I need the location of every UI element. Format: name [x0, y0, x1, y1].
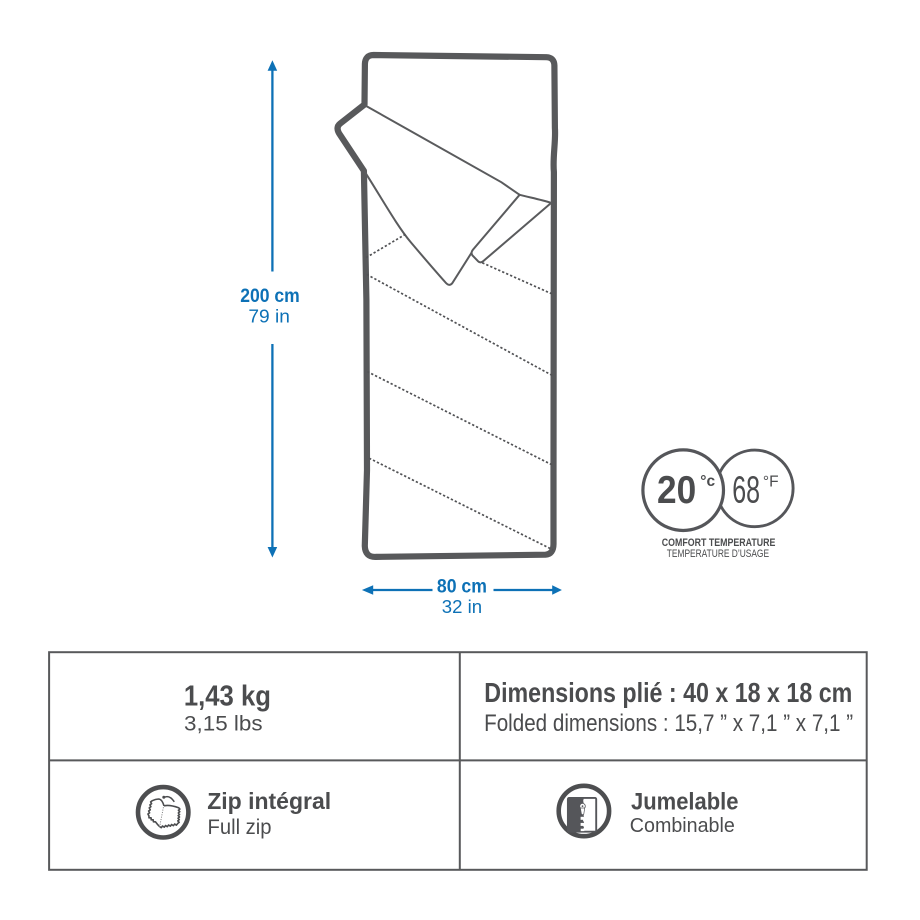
svg-text:20: 20: [657, 469, 696, 512]
svg-text:Jumelable: Jumelable: [631, 788, 739, 815]
svg-text:80 cm: 80 cm: [437, 576, 487, 598]
svg-text:Zip intégral: Zip intégral: [207, 788, 331, 814]
svg-text:32 in: 32 in: [442, 596, 482, 617]
svg-text:Full zip: Full zip: [208, 815, 272, 839]
svg-text:Dimensions plié : 40 x 18 x 18: Dimensions plié : 40 x 18 x 18 cm: [484, 677, 852, 708]
svg-text:200 cm: 200 cm: [240, 285, 300, 307]
svg-text:68: 68: [732, 470, 760, 512]
svg-text:Combinable: Combinable: [630, 815, 735, 837]
svg-text:1,43 kg: 1,43 kg: [184, 680, 271, 712]
svg-text:3,15 lbs: 3,15 lbs: [184, 712, 263, 736]
svg-text:°F: °F: [763, 474, 779, 491]
svg-text:TEMPERATURE D’USAGE: TEMPERATURE D’USAGE: [667, 548, 769, 560]
svg-text:79 in: 79 in: [248, 306, 290, 327]
svg-text:Folded dimensions : 15,7 ” x 7: Folded dimensions : 15,7 ” x 7,1 ” x 7,1…: [484, 710, 853, 737]
svg-text:°c: °c: [700, 473, 715, 490]
